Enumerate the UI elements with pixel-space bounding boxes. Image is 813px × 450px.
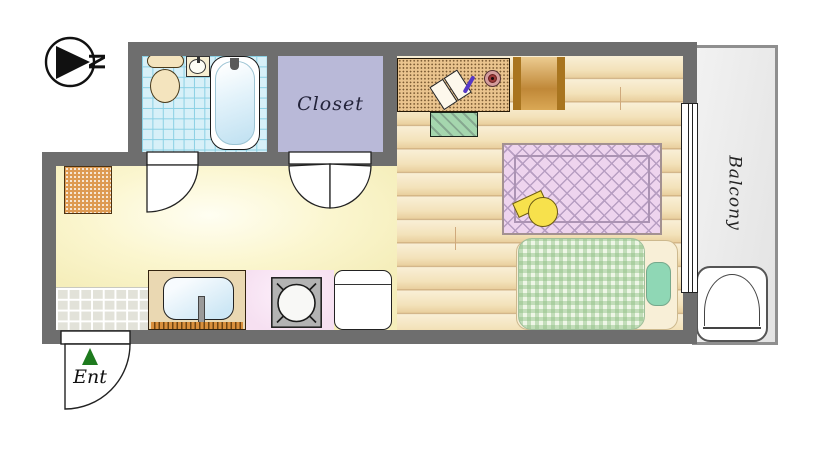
cup-center [491,77,494,80]
washing-machine-drum [704,274,760,326]
plank-seam [620,87,621,110]
dresser-side [557,57,565,110]
washing-machine-icon [696,266,768,342]
wall-bottom [42,330,697,344]
dresser-icon [513,57,565,110]
bed-pillow [646,262,671,306]
wall-closet-right [383,42,397,166]
kitchen-faucet-icon [198,296,205,323]
floor-cushion-icon [528,197,558,227]
window-pane-line [692,104,693,292]
washing-machine-panel-line [703,327,761,329]
toilet-tank-icon [147,54,184,68]
balcony-label: Balcony [725,155,745,230]
window-pane-line [688,104,689,292]
dresser-side [513,57,521,110]
entrance-label: Ent [62,366,118,388]
wall-top [128,42,697,56]
bathtub-icon [210,56,260,150]
wall-left [42,152,56,344]
closet-room: Closet [278,56,383,152]
bathtub-water [215,61,255,145]
floor-chair-icon [430,112,478,137]
balcony-area: Balcony [692,45,778,345]
wall-mid-horizontal [42,152,142,166]
balcony-label-wrap: Balcony [695,118,775,268]
refrigerator-icon [334,270,392,330]
entrance-tile-floor [56,287,152,330]
window-icon [681,103,698,293]
closet-double-door-icon [286,149,376,213]
closet-label: Closet [297,93,364,115]
kitchen-drainboard [151,322,243,329]
refrigerator-door-line [335,284,391,285]
hand-sink-icon [186,56,210,77]
shoe-cabinet-icon [64,166,112,214]
wall-bathroom-left [128,42,142,166]
floor-plan-canvas: Balcony Closet [0,0,813,450]
kitchen-sink-counter [148,270,246,330]
toilet-bowl-icon [150,69,180,103]
bathroom-door-icon [143,149,205,217]
wall-bathroom-closet [267,56,278,152]
cup-icon [484,70,501,87]
gas-stove-icon [271,277,322,328]
entrance-arrow-icon [82,348,98,365]
compass-north-label: N [83,53,110,70]
rug [502,143,662,235]
plank-seam [455,227,456,250]
bed-blanket [518,238,645,330]
bathtub-tap [230,58,239,70]
